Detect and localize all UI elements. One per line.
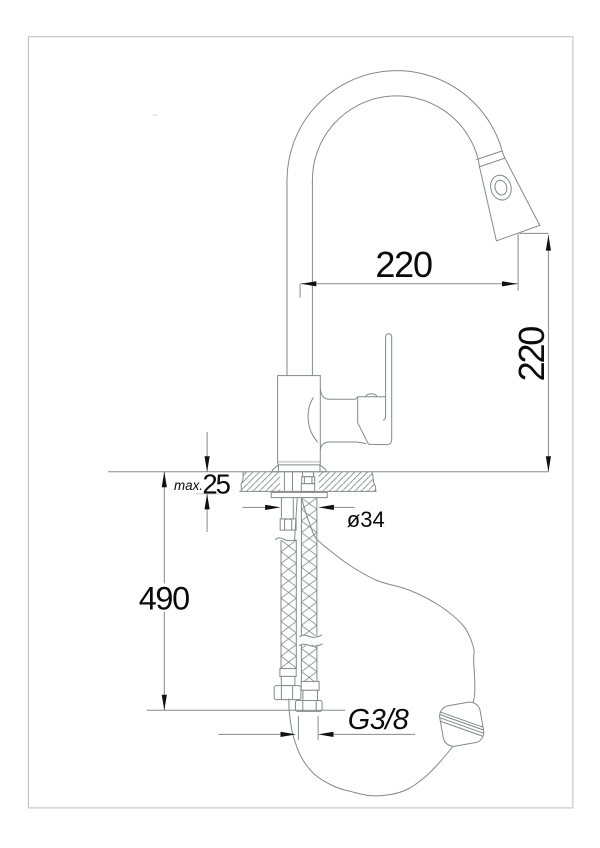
svg-text:490: 490 <box>139 580 189 616</box>
svg-text:G3/8: G3/8 <box>348 704 409 736</box>
svg-text:25: 25 <box>202 468 230 499</box>
svg-text:ø34: ø34 <box>347 507 385 532</box>
svg-text:220: 220 <box>375 244 432 285</box>
svg-text:max.: max. <box>174 478 203 493</box>
svg-text:220: 220 <box>511 327 552 382</box>
